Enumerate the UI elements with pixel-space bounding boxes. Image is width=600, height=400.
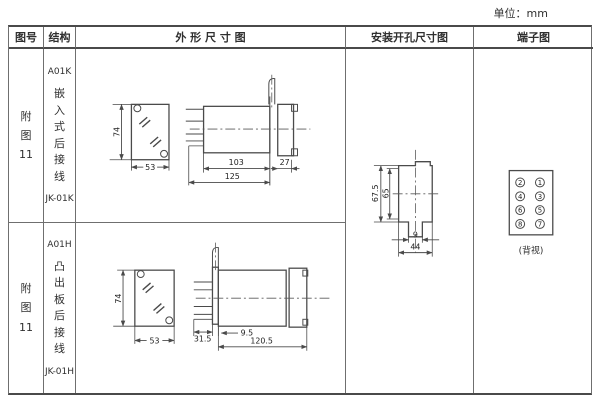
fig-no-row1: 附 图 11 [9, 49, 44, 223]
code-label-jk01h: JK-01H [45, 367, 74, 377]
install-hole-cell: 67.5 65 9 44 [346, 49, 474, 393]
front-cover [289, 268, 307, 327]
dim-label-height: 74 [113, 127, 122, 137]
dim-label-total-length: 120.5 [250, 336, 273, 345]
dim-label-flange-depth: 27 [280, 158, 290, 167]
manual-page: 单位：mm 图号 结构 外 形 尺 寸 图 安装开孔尺寸图 端子图 附 图 11… [0, 0, 600, 400]
dim-label-width: 53 [149, 336, 159, 345]
unit-label: 单位：mm [494, 5, 548, 21]
outline-drawing-a01k: 74 53 [76, 49, 345, 222]
structure-row1: A01K 嵌 入 式 后 接 线 JK-01K [44, 49, 76, 223]
col-header-structure: 结构 [44, 27, 76, 49]
dim-label-height: 74 [114, 294, 123, 304]
terminal-number: 4 [518, 193, 522, 201]
outline-drawing-a01h: 74 53 [76, 223, 345, 393]
mounting-screw-icon [166, 317, 173, 324]
terminal-number: 7 [538, 220, 542, 228]
outline-cell-a01k: 74 53 [76, 49, 346, 223]
rear-view-caption: (背视) [519, 245, 544, 257]
col-header-terminal: 端子图 [474, 27, 593, 49]
col-header-outline: 外 形 尺 寸 图 [76, 27, 346, 49]
code-label-jk01k: JK-01K [45, 194, 73, 204]
structure-row2: A01H 凸 出 板 后 接 线 JK-01H [44, 223, 76, 393]
fig-no-row2: 附 图 11 [9, 223, 44, 393]
hatch-mark-icon [139, 117, 150, 127]
install-hole-drawing: 67.5 65 9 44 [346, 49, 473, 393]
dim-label-inner-height: 65 [382, 188, 391, 198]
terminal-diagram-cell: 2 4 6 8 1 3 5 7 (背视) [474, 49, 593, 393]
dimension-table: 图号 结构 外 形 尺 寸 图 安装开孔尺寸图 端子图 附 图 11 A01K … [8, 25, 592, 395]
terminal-number: 1 [538, 179, 542, 187]
hatch-mark-icon [150, 137, 161, 147]
terminal-number: 5 [538, 207, 542, 215]
rear-flange [278, 104, 294, 155]
terminal-number: 6 [518, 207, 522, 215]
model-label-a01k: A01K [48, 67, 72, 77]
terminal-circles: 2 4 6 8 1 3 5 7 [516, 178, 545, 228]
model-label-a01h: A01H [47, 240, 71, 250]
mounting-screw-icon [134, 105, 141, 112]
outline-cell-a01h: 74 53 [76, 223, 346, 393]
dim-label-width: 53 [145, 163, 155, 172]
mount-desc-a01k: 嵌 入 式 后 接 线 [54, 86, 65, 185]
dim-label-body-length: 103 [229, 158, 244, 167]
col-header-install: 安装开孔尺寸图 [346, 27, 474, 49]
mounting-plate [212, 267, 218, 324]
mounting-screw-icon [161, 150, 168, 157]
terminal-pins [186, 109, 204, 141]
dim-label-total-length: 125 [225, 172, 240, 181]
dim-label-slot-width: 9 [413, 230, 418, 239]
dim-label-opening-width: 44 [410, 243, 420, 252]
col-header-fig-no: 图号 [9, 27, 44, 49]
terminal-number: 8 [518, 220, 522, 228]
mounting-screw-icon [137, 271, 144, 278]
relay-body [204, 106, 270, 152]
hatch-mark-icon [143, 283, 154, 293]
side-view: 31.5 9.5 120.5 [194, 243, 330, 351]
mount-desc-a01h: 凸 出 板 后 接 线 [54, 259, 65, 358]
terminal-number: 3 [538, 193, 542, 201]
side-view: 103 27 125 [186, 75, 311, 186]
hatch-mark-icon [154, 304, 165, 314]
dim-label-plate-offset: 31.5 [194, 334, 212, 343]
front-view: 74 53 [110, 104, 169, 172]
terminal-number: 2 [518, 179, 522, 187]
terminal-diagram: 2 4 6 8 1 3 5 7 (背视) [474, 49, 593, 393]
dim-label-outer-height: 67.5 [371, 185, 380, 203]
front-view: 74 53 [113, 270, 174, 345]
